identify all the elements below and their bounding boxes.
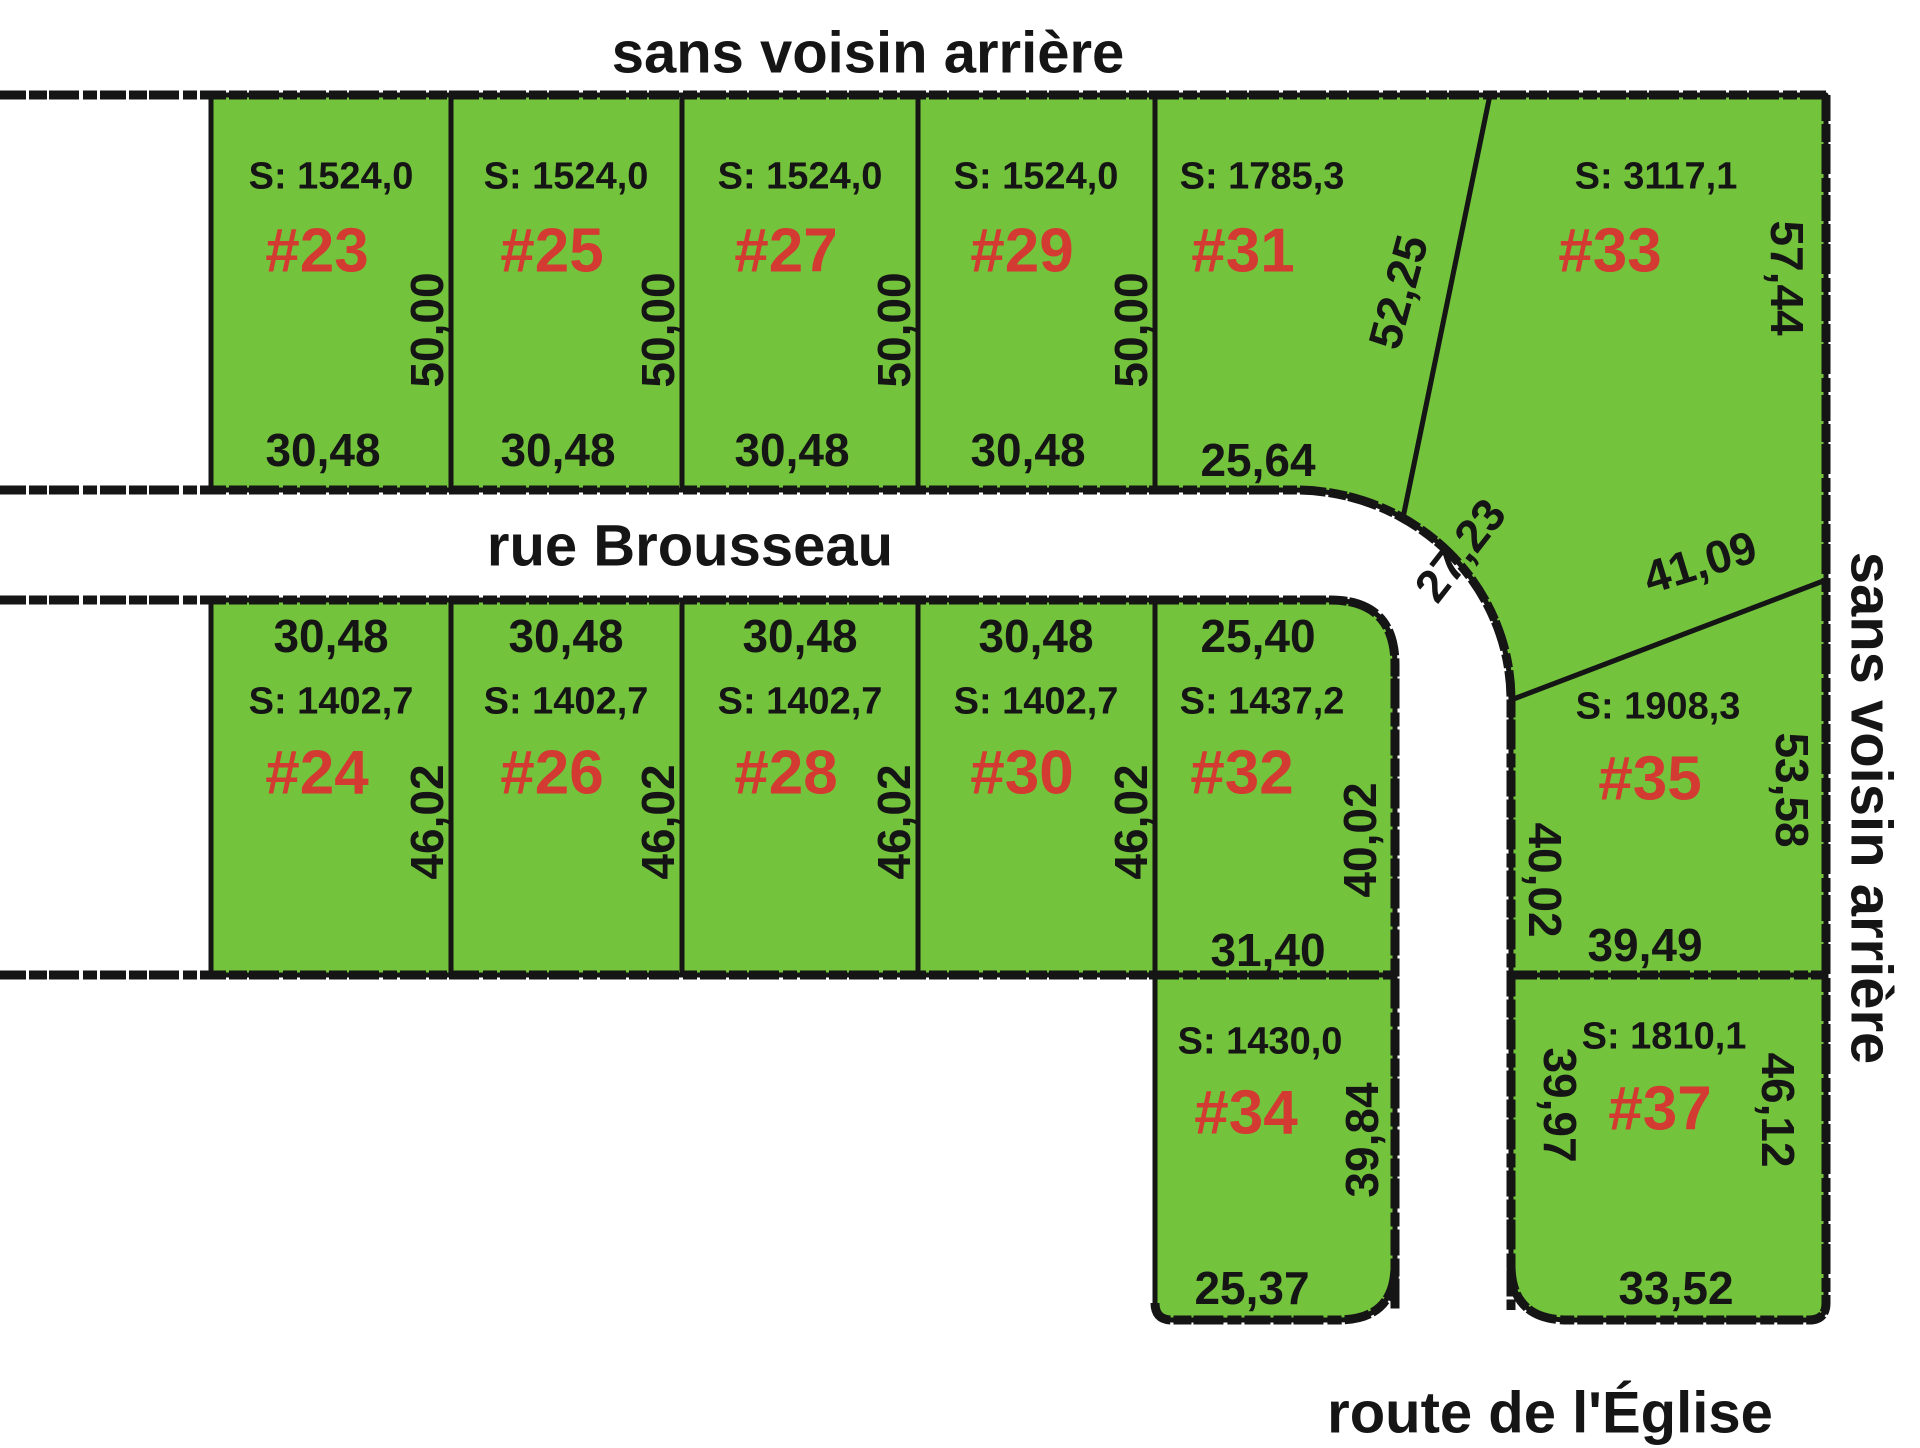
- lot-27-area-label: S: 1524,0: [718, 155, 883, 197]
- lot-29-number: #29: [970, 217, 1073, 286]
- lot-28-front-dim: 30,48: [742, 610, 857, 662]
- lot-32: 25,40 S: 1437,2 #32 40,02 31,40: [1155, 600, 1395, 976]
- lot-25-number: #25: [500, 217, 603, 286]
- lot-33-area-label: S: 3117,1: [1575, 155, 1738, 197]
- lot-23-depth-dim: 50,00: [401, 272, 453, 387]
- lot-26-front-dim: 30,48: [508, 610, 623, 662]
- lot-31-front-dim: 25,64: [1200, 434, 1316, 486]
- lot-27: S: 1524,0 #27 50,00 30,48: [682, 95, 920, 490]
- lot-37-right-dim: 46,12: [1752, 1052, 1804, 1167]
- lot-27-depth-dim: 50,00: [868, 272, 920, 387]
- lot-37-left-dim: 39,97: [1534, 1047, 1586, 1162]
- lot-37-area-label: S: 1810,1: [1582, 1015, 1747, 1057]
- lot-35-right-dim: 53,58: [1766, 732, 1818, 847]
- lot-35-rear-dim: 39,49: [1587, 919, 1702, 971]
- lot-23-number: #23: [265, 217, 368, 286]
- lot-30-area-label: S: 1402,7: [954, 680, 1119, 722]
- lot-23-area-label: S: 1524,0: [249, 155, 414, 197]
- bottom-road-label: route de l'Église: [1327, 1380, 1773, 1445]
- lot-24: 30,48 S: 1402,7 #24 46,02: [211, 600, 453, 975]
- lot-37-rear-dim: 33,52: [1618, 1262, 1733, 1314]
- lot-32-depth-dim: 40,02: [1334, 782, 1386, 897]
- lot-29-area-label: S: 1524,0: [954, 155, 1119, 197]
- lot-26-number: #26: [500, 739, 603, 808]
- lot-26-depth-dim: 46,02: [632, 764, 684, 879]
- lot-26: 30,48 S: 1402,7 #26 46,02: [451, 600, 684, 975]
- lot-28-depth-dim: 46,02: [868, 764, 920, 879]
- lot-25: S: 1524,0 #25 50,00 30,48: [451, 95, 684, 490]
- street-name-label: rue Brousseau: [487, 513, 893, 578]
- lot-30-depth-dim: 46,02: [1105, 764, 1157, 879]
- lot-32-number: #32: [1190, 739, 1293, 808]
- lot-31-number: #31: [1191, 217, 1294, 286]
- lot-37-number: #37: [1608, 1075, 1711, 1144]
- lot-29: S: 1524,0 #29 50,00 30,48: [918, 95, 1157, 490]
- lot-24-front-dim: 30,48: [273, 610, 388, 662]
- lot-23: S: 1524,0 #23 50,00 30,48: [211, 95, 453, 490]
- lot-34-depth-dim: 39,84: [1336, 1082, 1388, 1198]
- lot-25-depth-dim: 50,00: [632, 272, 684, 387]
- lot-24-number: #24: [265, 739, 369, 808]
- subdivision-plan-page: S: 1524,0 #23 50,00 30,48 S: 1524,0 #25 …: [0, 0, 1920, 1448]
- lot-35-number: #35: [1598, 745, 1701, 814]
- lot-30: 30,48 S: 1402,7 #30 46,02: [918, 600, 1157, 975]
- lot-25-front-dim: 30,48: [500, 424, 615, 476]
- lot-28-number: #28: [734, 739, 837, 808]
- lot-23-front-dim: 30,48: [265, 424, 380, 476]
- lot-28-area-label: S: 1402,7: [718, 680, 883, 722]
- lot-29-depth-dim: 50,00: [1105, 272, 1157, 387]
- lot-32-rear-dim: 31,40: [1210, 924, 1325, 976]
- lot-26-area-label: S: 1402,7: [484, 680, 649, 722]
- lot-35-left-dim: 40,02: [1519, 822, 1571, 937]
- lot-33-right-dim: 57,44: [1761, 220, 1813, 336]
- lot-31-area-label: S: 1785,3: [1180, 155, 1345, 197]
- lot-27-number: #27: [734, 217, 837, 286]
- lot-34-number: #34: [1194, 1079, 1298, 1148]
- lot-25-area-label: S: 1524,0: [484, 155, 649, 197]
- top-boundary-label: sans voisin arrière: [612, 20, 1125, 85]
- lot-24-depth-dim: 46,02: [401, 764, 453, 879]
- lot-30-front-dim: 30,48: [978, 610, 1093, 662]
- subdivision-map: S: 1524,0 #23 50,00 30,48 S: 1524,0 #25 …: [0, 0, 1920, 1448]
- lot-32-area-label: S: 1437,2: [1180, 680, 1345, 722]
- right-boundary-label: sans voisin arrière: [1839, 552, 1904, 1065]
- lot-29-front-dim: 30,48: [970, 424, 1085, 476]
- lot-34-rear-dim: 25,37: [1194, 1262, 1309, 1314]
- lot-30-number: #30: [970, 739, 1073, 808]
- lot-34: S: 1430,0 #34 39,84 25,37: [1155, 975, 1395, 1320]
- lot-33-number: #33: [1558, 217, 1661, 286]
- lot-37: S: 1810,1 #37 39,97 46,12 33,52: [1511, 975, 1826, 1320]
- lot-35-area-label: S: 1908,3: [1576, 685, 1741, 727]
- lot-27-front-dim: 30,48: [734, 424, 849, 476]
- lot-32-front-dim: 25,40: [1200, 610, 1315, 662]
- lot-34-area-label: S: 1430,0: [1178, 1020, 1343, 1062]
- lot-24-area-label: S: 1402,7: [249, 680, 414, 722]
- lot-28: 30,48 S: 1402,7 #28 46,02: [682, 600, 920, 975]
